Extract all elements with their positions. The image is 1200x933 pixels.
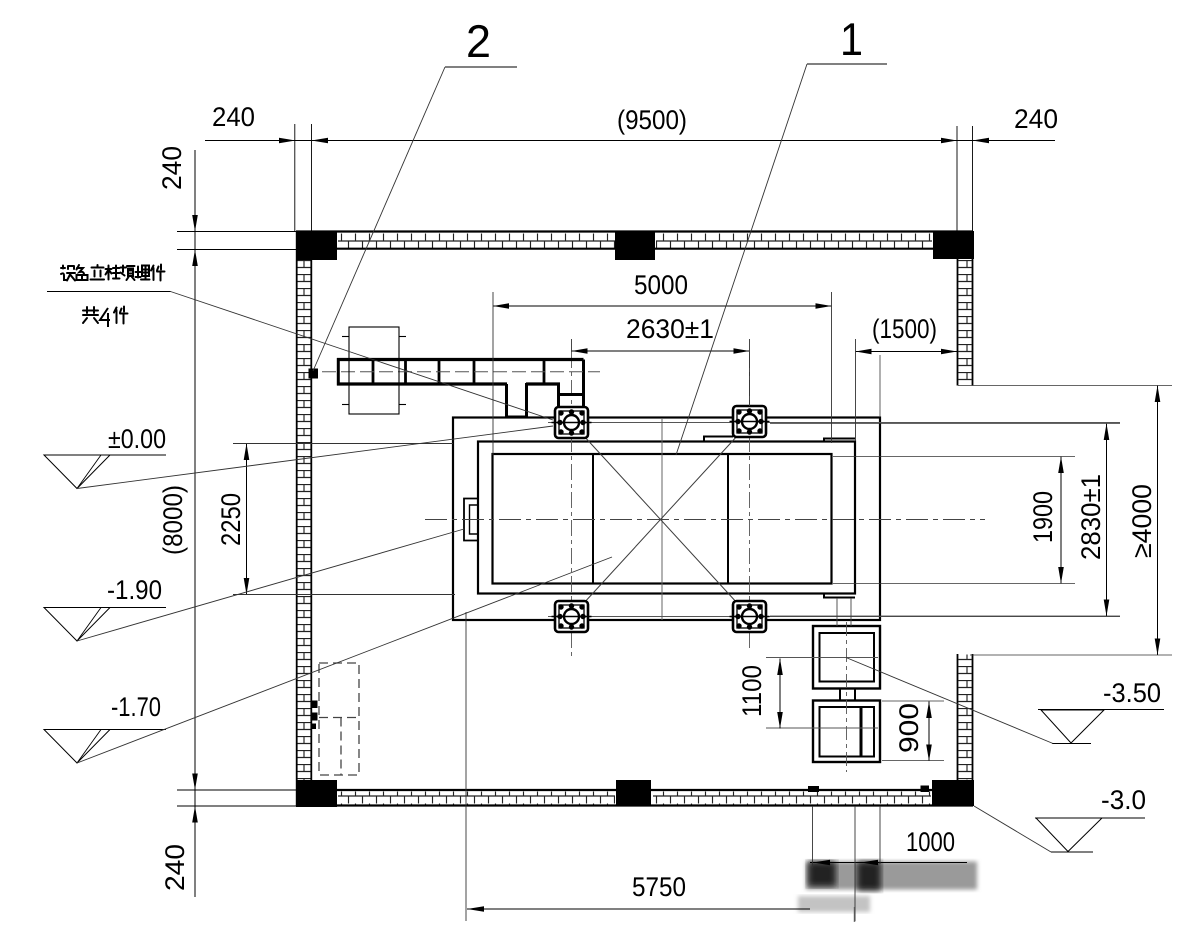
- svg-text:240: 240: [160, 844, 190, 891]
- svg-text:-3.50: -3.50: [1103, 678, 1161, 708]
- svg-text:-3.0: -3.0: [1101, 785, 1146, 815]
- svg-text:2830±1: 2830±1: [1076, 474, 1106, 560]
- svg-text:240: 240: [212, 102, 255, 132]
- svg-text:(1500): (1500): [872, 314, 937, 344]
- svg-text:±0.00: ±0.00: [108, 424, 166, 454]
- svg-text:(8000): (8000): [158, 485, 188, 555]
- svg-text:900: 900: [894, 703, 924, 753]
- svg-text:≥4000: ≥4000: [1127, 484, 1157, 558]
- svg-text:1000: 1000: [906, 827, 955, 857]
- svg-text:1: 1: [840, 13, 863, 65]
- svg-text:1900: 1900: [1028, 491, 1058, 543]
- svg-text:2630±1: 2630±1: [626, 314, 714, 344]
- svg-text:-1.90: -1.90: [107, 575, 162, 605]
- svg-text:2: 2: [466, 15, 491, 67]
- svg-text:(9500): (9500): [617, 105, 687, 135]
- svg-text:240: 240: [1014, 104, 1058, 134]
- svg-text:240: 240: [157, 146, 187, 190]
- svg-text:5750: 5750: [632, 872, 686, 902]
- svg-text:2250: 2250: [216, 493, 246, 546]
- svg-text:-1.70: -1.70: [111, 692, 161, 722]
- svg-text:5000: 5000: [634, 270, 688, 300]
- svg-text:1100: 1100: [737, 665, 767, 717]
